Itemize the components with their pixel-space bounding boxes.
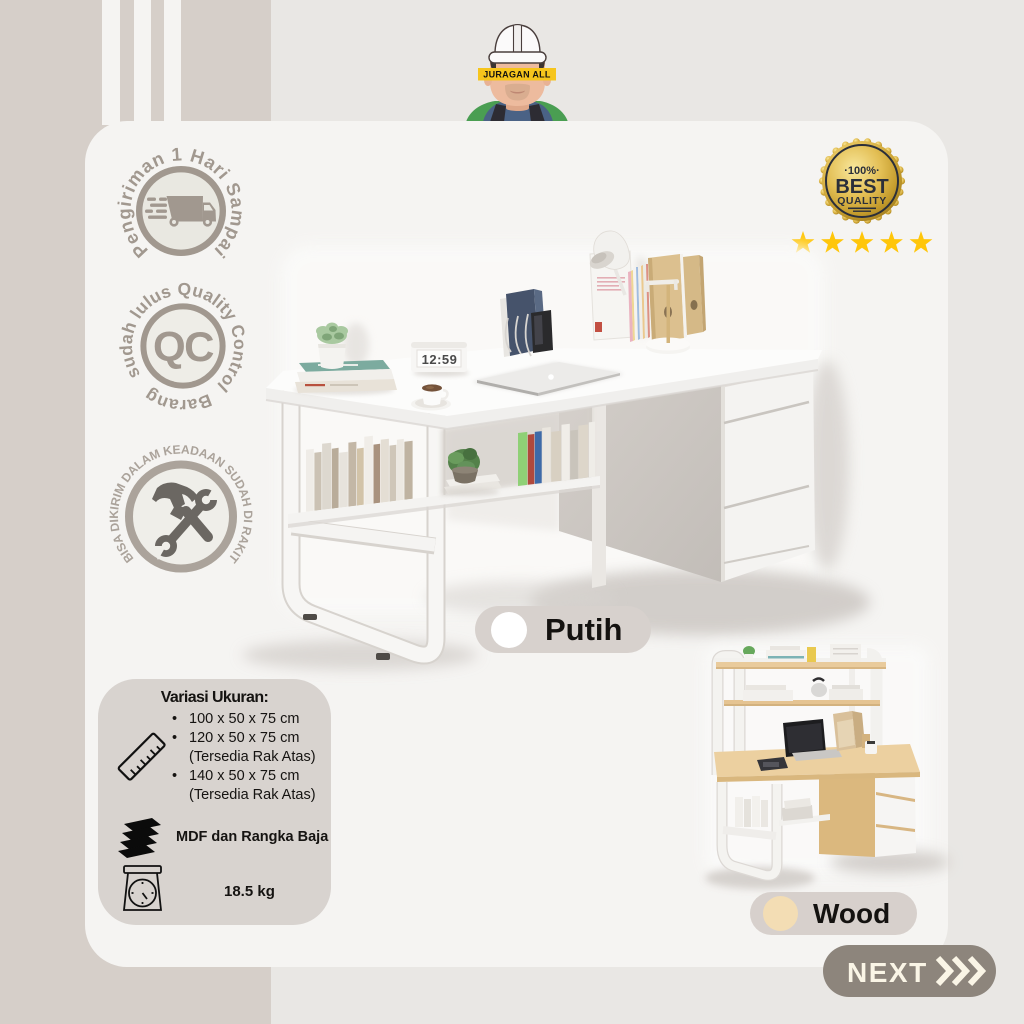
svg-text:12:59: 12:59: [422, 352, 458, 367]
svg-text:QUALITY: QUALITY: [837, 195, 887, 207]
svg-text:Barang: Barang: [141, 385, 215, 416]
svg-text:QC: QC: [153, 323, 214, 370]
